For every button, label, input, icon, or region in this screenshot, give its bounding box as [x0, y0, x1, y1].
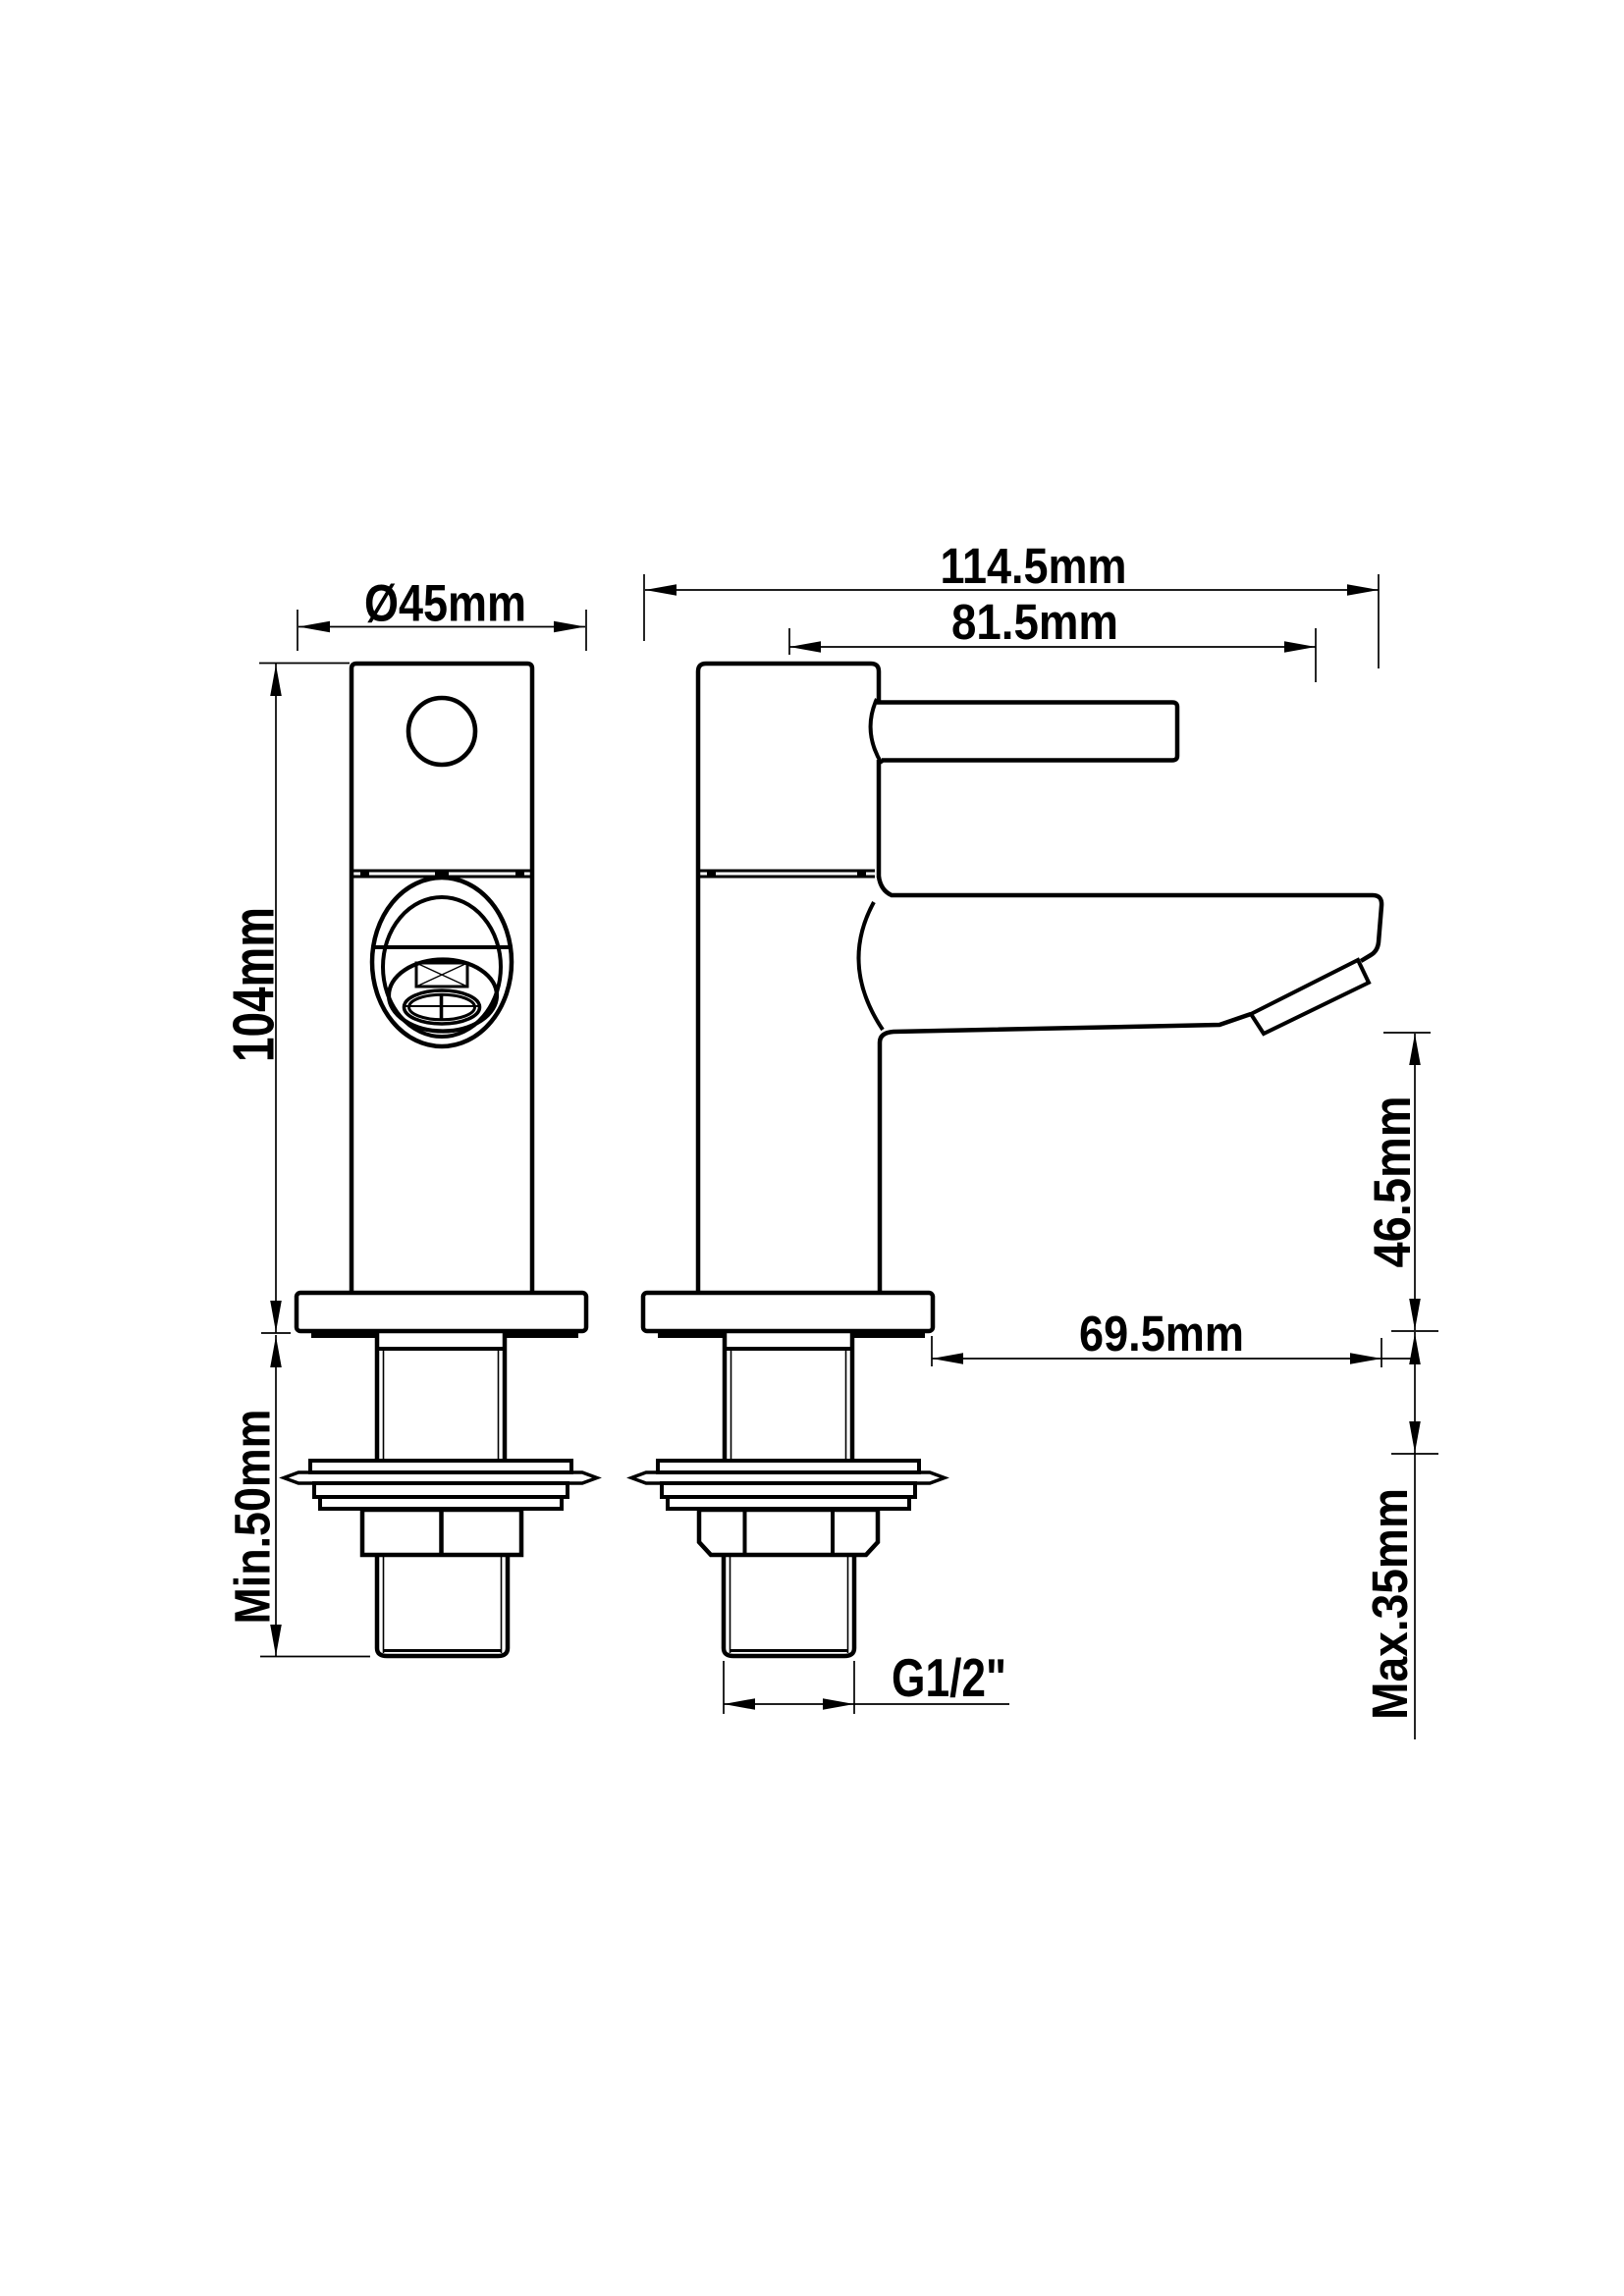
svg-text:114.5mm: 114.5mm [941, 538, 1127, 594]
svg-text:104mm: 104mm [222, 907, 287, 1062]
svg-text:Max.35mm: Max.35mm [1362, 1488, 1418, 1720]
svg-text:46.5mm: 46.5mm [1364, 1096, 1422, 1268]
svg-text:81.5mm: 81.5mm [951, 594, 1118, 650]
svg-text:69.5mm: 69.5mm [1079, 1306, 1244, 1362]
svg-text:Min.50mm: Min.50mm [225, 1410, 281, 1625]
svg-text:Ø45mm: Ø45mm [364, 574, 526, 632]
svg-text:G1/2": G1/2" [892, 1647, 1006, 1708]
